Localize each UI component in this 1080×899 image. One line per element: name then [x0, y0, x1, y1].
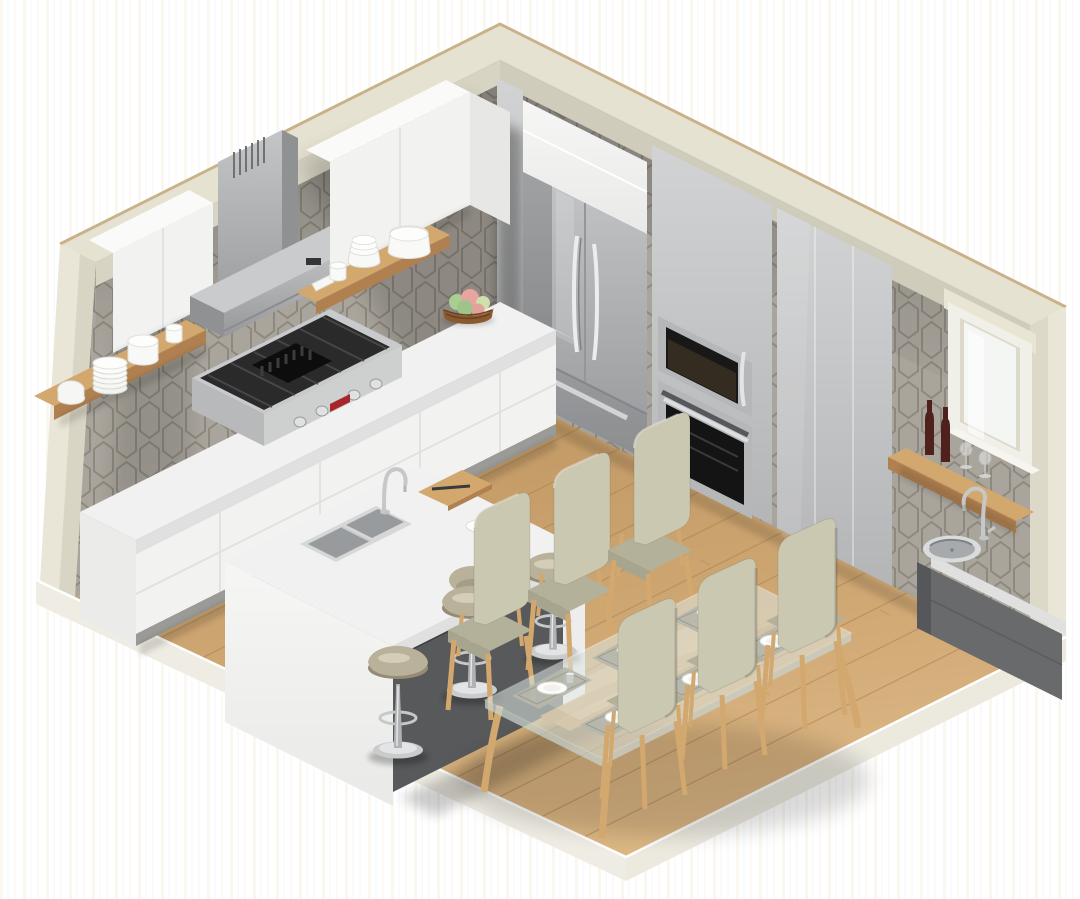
bowl-stack: [348, 235, 380, 267]
corner-upper-filler: [470, 92, 510, 225]
cup: [330, 262, 346, 281]
round-dish: [58, 381, 85, 405]
plate-stack: [93, 357, 127, 394]
sink-drain: [950, 548, 954, 552]
kitchen-render: Isometric 3D cutaway rendering of a mode…: [0, 0, 1080, 899]
hood-badge: [306, 258, 321, 265]
serving-bowl: [388, 226, 430, 259]
dining-shadow: [460, 724, 870, 836]
round-canister: [128, 335, 158, 365]
microwave-handle: [742, 352, 744, 406]
small-cup: [166, 324, 182, 343]
prep-sink: [923, 536, 981, 563]
isometric-kitchen-scene: [0, 0, 1080, 899]
sink-base-cabinet-side: [917, 562, 931, 635]
window-glass-reflection: [968, 330, 984, 440]
fridge-reflection-light: [556, 190, 574, 345]
